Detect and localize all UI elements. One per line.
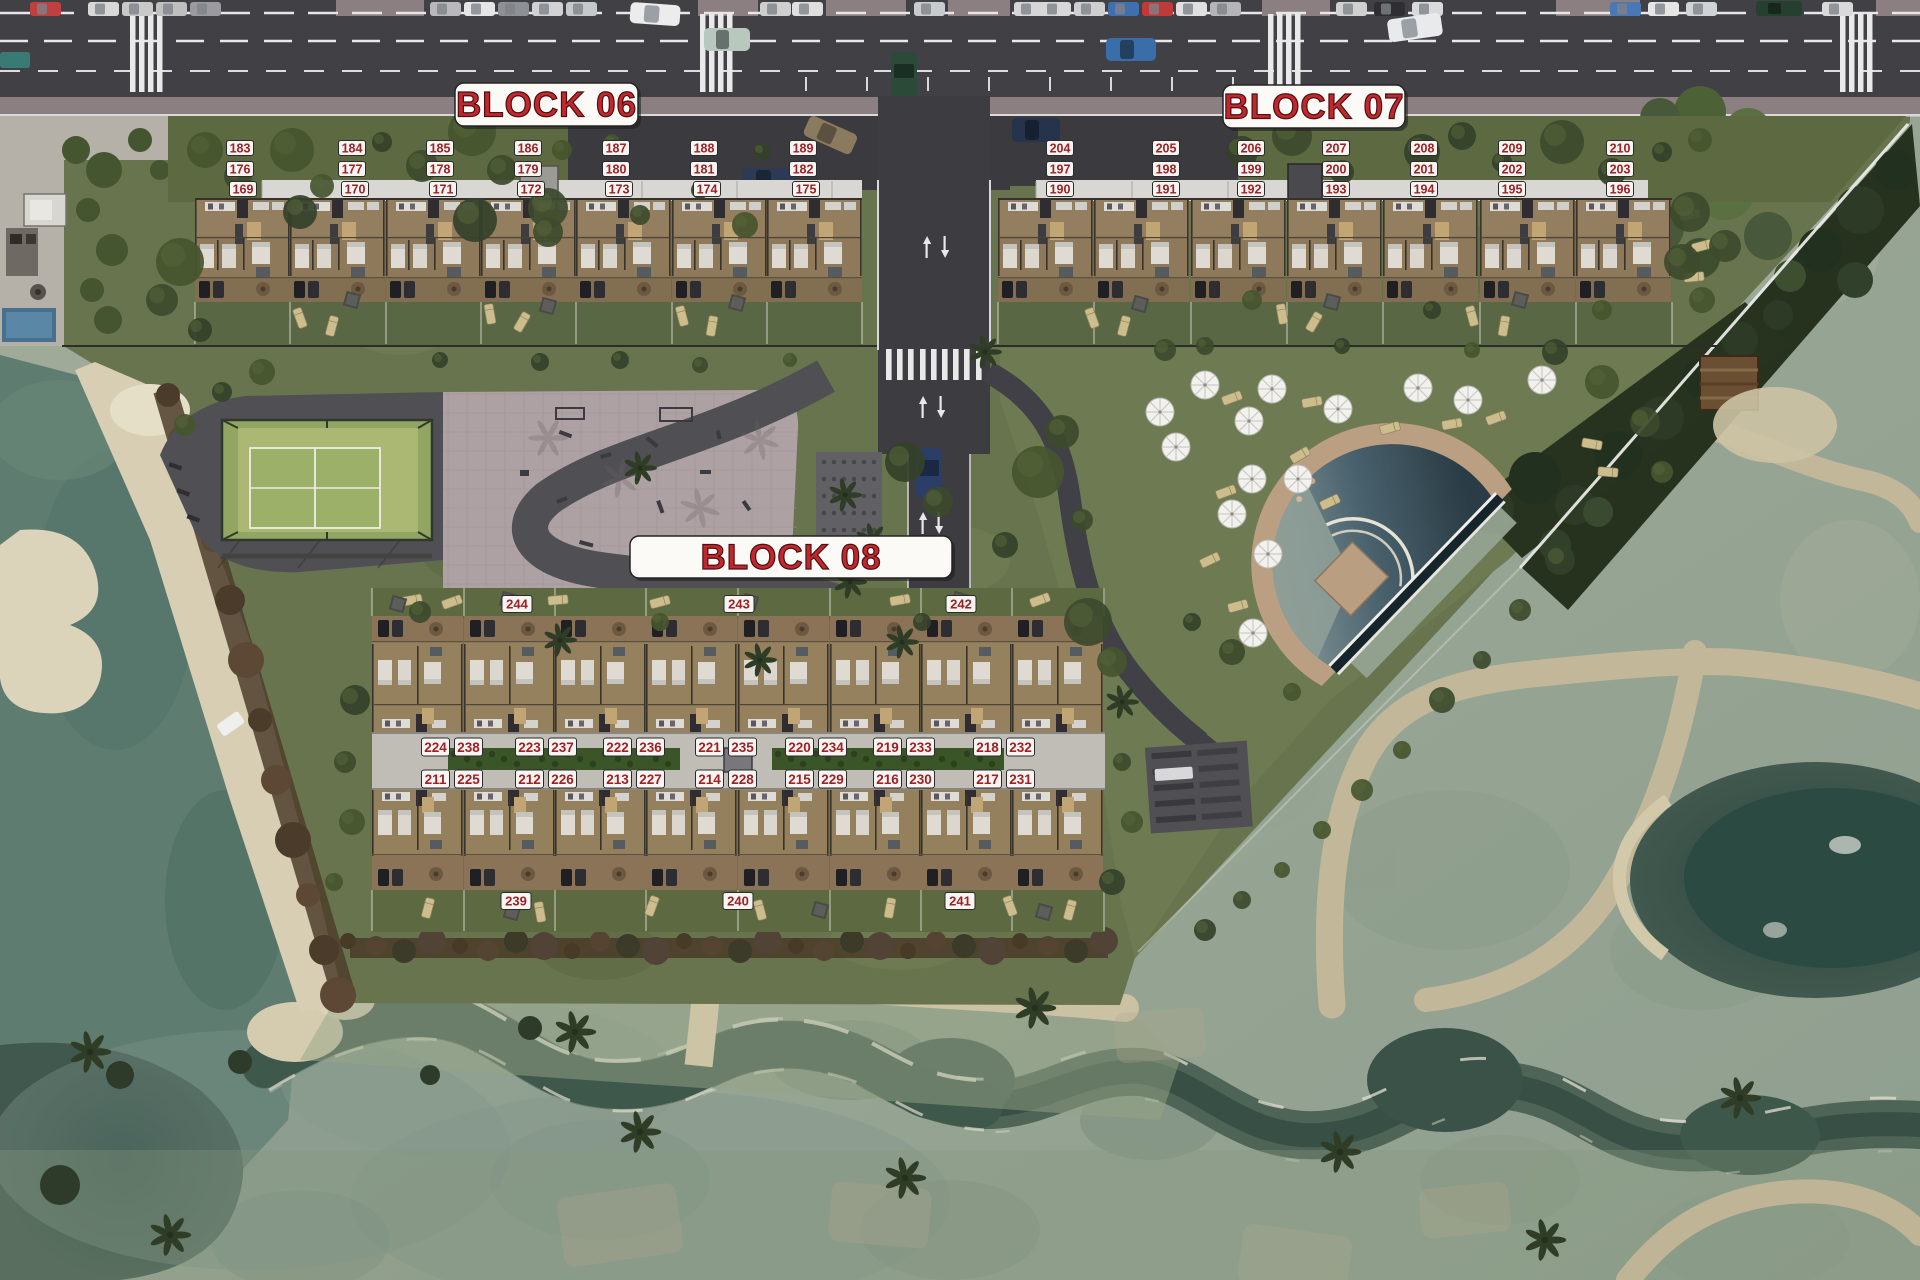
svg-text:191: 191: [1156, 183, 1177, 197]
svg-text:230: 230: [909, 772, 932, 787]
svg-text:213: 213: [606, 772, 629, 787]
svg-text:229: 229: [821, 772, 844, 787]
svg-text:176: 176: [230, 163, 251, 177]
svg-text:180: 180: [606, 163, 627, 177]
svg-text:188: 188: [694, 142, 715, 156]
svg-text:221: 221: [698, 740, 721, 755]
svg-text:189: 189: [793, 142, 814, 156]
svg-text:242: 242: [950, 597, 972, 612]
svg-text:192: 192: [1241, 183, 1262, 197]
svg-text:BLOCK 08: BLOCK 08: [700, 538, 881, 577]
svg-text:173: 173: [609, 183, 630, 197]
svg-text:BLOCK 06: BLOCK 06: [456, 86, 637, 125]
svg-text:214: 214: [698, 772, 721, 787]
svg-text:215: 215: [788, 772, 811, 787]
svg-text:190: 190: [1050, 183, 1071, 197]
svg-text:199: 199: [1241, 163, 1262, 177]
svg-text:183: 183: [230, 142, 251, 156]
svg-text:178: 178: [430, 163, 451, 177]
svg-text:171: 171: [433, 183, 454, 197]
svg-text:211: 211: [425, 772, 447, 787]
svg-text:172: 172: [521, 183, 542, 197]
svg-text:BLOCK 07: BLOCK 07: [1223, 88, 1404, 127]
svg-text:218: 218: [976, 740, 999, 755]
svg-text:212: 212: [518, 772, 541, 787]
svg-text:196: 196: [1610, 183, 1631, 197]
svg-text:193: 193: [1326, 183, 1347, 197]
svg-text:244: 244: [506, 597, 528, 612]
svg-text:202: 202: [1502, 163, 1523, 177]
svg-text:220: 220: [788, 740, 811, 755]
svg-text:205: 205: [1156, 142, 1177, 156]
svg-text:241: 241: [949, 894, 971, 909]
svg-text:223: 223: [518, 740, 541, 755]
svg-text:236: 236: [639, 740, 662, 755]
svg-text:177: 177: [342, 163, 363, 177]
svg-text:239: 239: [505, 894, 527, 909]
svg-text:208: 208: [1414, 142, 1435, 156]
svg-text:169: 169: [233, 183, 254, 197]
svg-text:194: 194: [1414, 183, 1435, 197]
svg-text:206: 206: [1241, 142, 1262, 156]
svg-text:238: 238: [457, 740, 480, 755]
svg-text:200: 200: [1326, 163, 1347, 177]
svg-text:224: 224: [424, 740, 447, 755]
svg-text:226: 226: [551, 772, 574, 787]
svg-text:201: 201: [1414, 163, 1435, 177]
svg-text:187: 187: [606, 142, 627, 156]
svg-text:186: 186: [518, 142, 539, 156]
svg-text:175: 175: [796, 183, 817, 197]
svg-text:227: 227: [639, 772, 662, 787]
svg-text:210: 210: [1610, 142, 1631, 156]
svg-text:179: 179: [518, 163, 539, 177]
svg-text:195: 195: [1502, 183, 1523, 197]
svg-text:174: 174: [697, 183, 718, 197]
svg-text:198: 198: [1156, 163, 1177, 177]
svg-text:203: 203: [1610, 163, 1631, 177]
svg-text:209: 209: [1502, 142, 1523, 156]
svg-text:222: 222: [606, 740, 629, 755]
svg-text:181: 181: [694, 163, 715, 177]
svg-text:182: 182: [793, 163, 814, 177]
svg-text:207: 207: [1326, 142, 1347, 156]
svg-text:228: 228: [731, 772, 754, 787]
svg-text:231: 231: [1009, 772, 1032, 787]
svg-text:219: 219: [876, 740, 899, 755]
svg-text:185: 185: [430, 142, 451, 156]
svg-text:234: 234: [821, 740, 844, 755]
svg-text:235: 235: [731, 740, 754, 755]
svg-text:240: 240: [727, 894, 749, 909]
svg-text:216: 216: [876, 772, 899, 787]
svg-text:225: 225: [457, 772, 480, 787]
svg-text:243: 243: [728, 597, 750, 612]
svg-text:233: 233: [909, 740, 932, 755]
svg-text:232: 232: [1009, 740, 1032, 755]
svg-text:197: 197: [1050, 163, 1071, 177]
svg-text:217: 217: [976, 772, 999, 787]
svg-text:204: 204: [1050, 142, 1071, 156]
svg-text:184: 184: [342, 142, 363, 156]
svg-text:170: 170: [345, 183, 366, 197]
svg-text:237: 237: [551, 740, 574, 755]
